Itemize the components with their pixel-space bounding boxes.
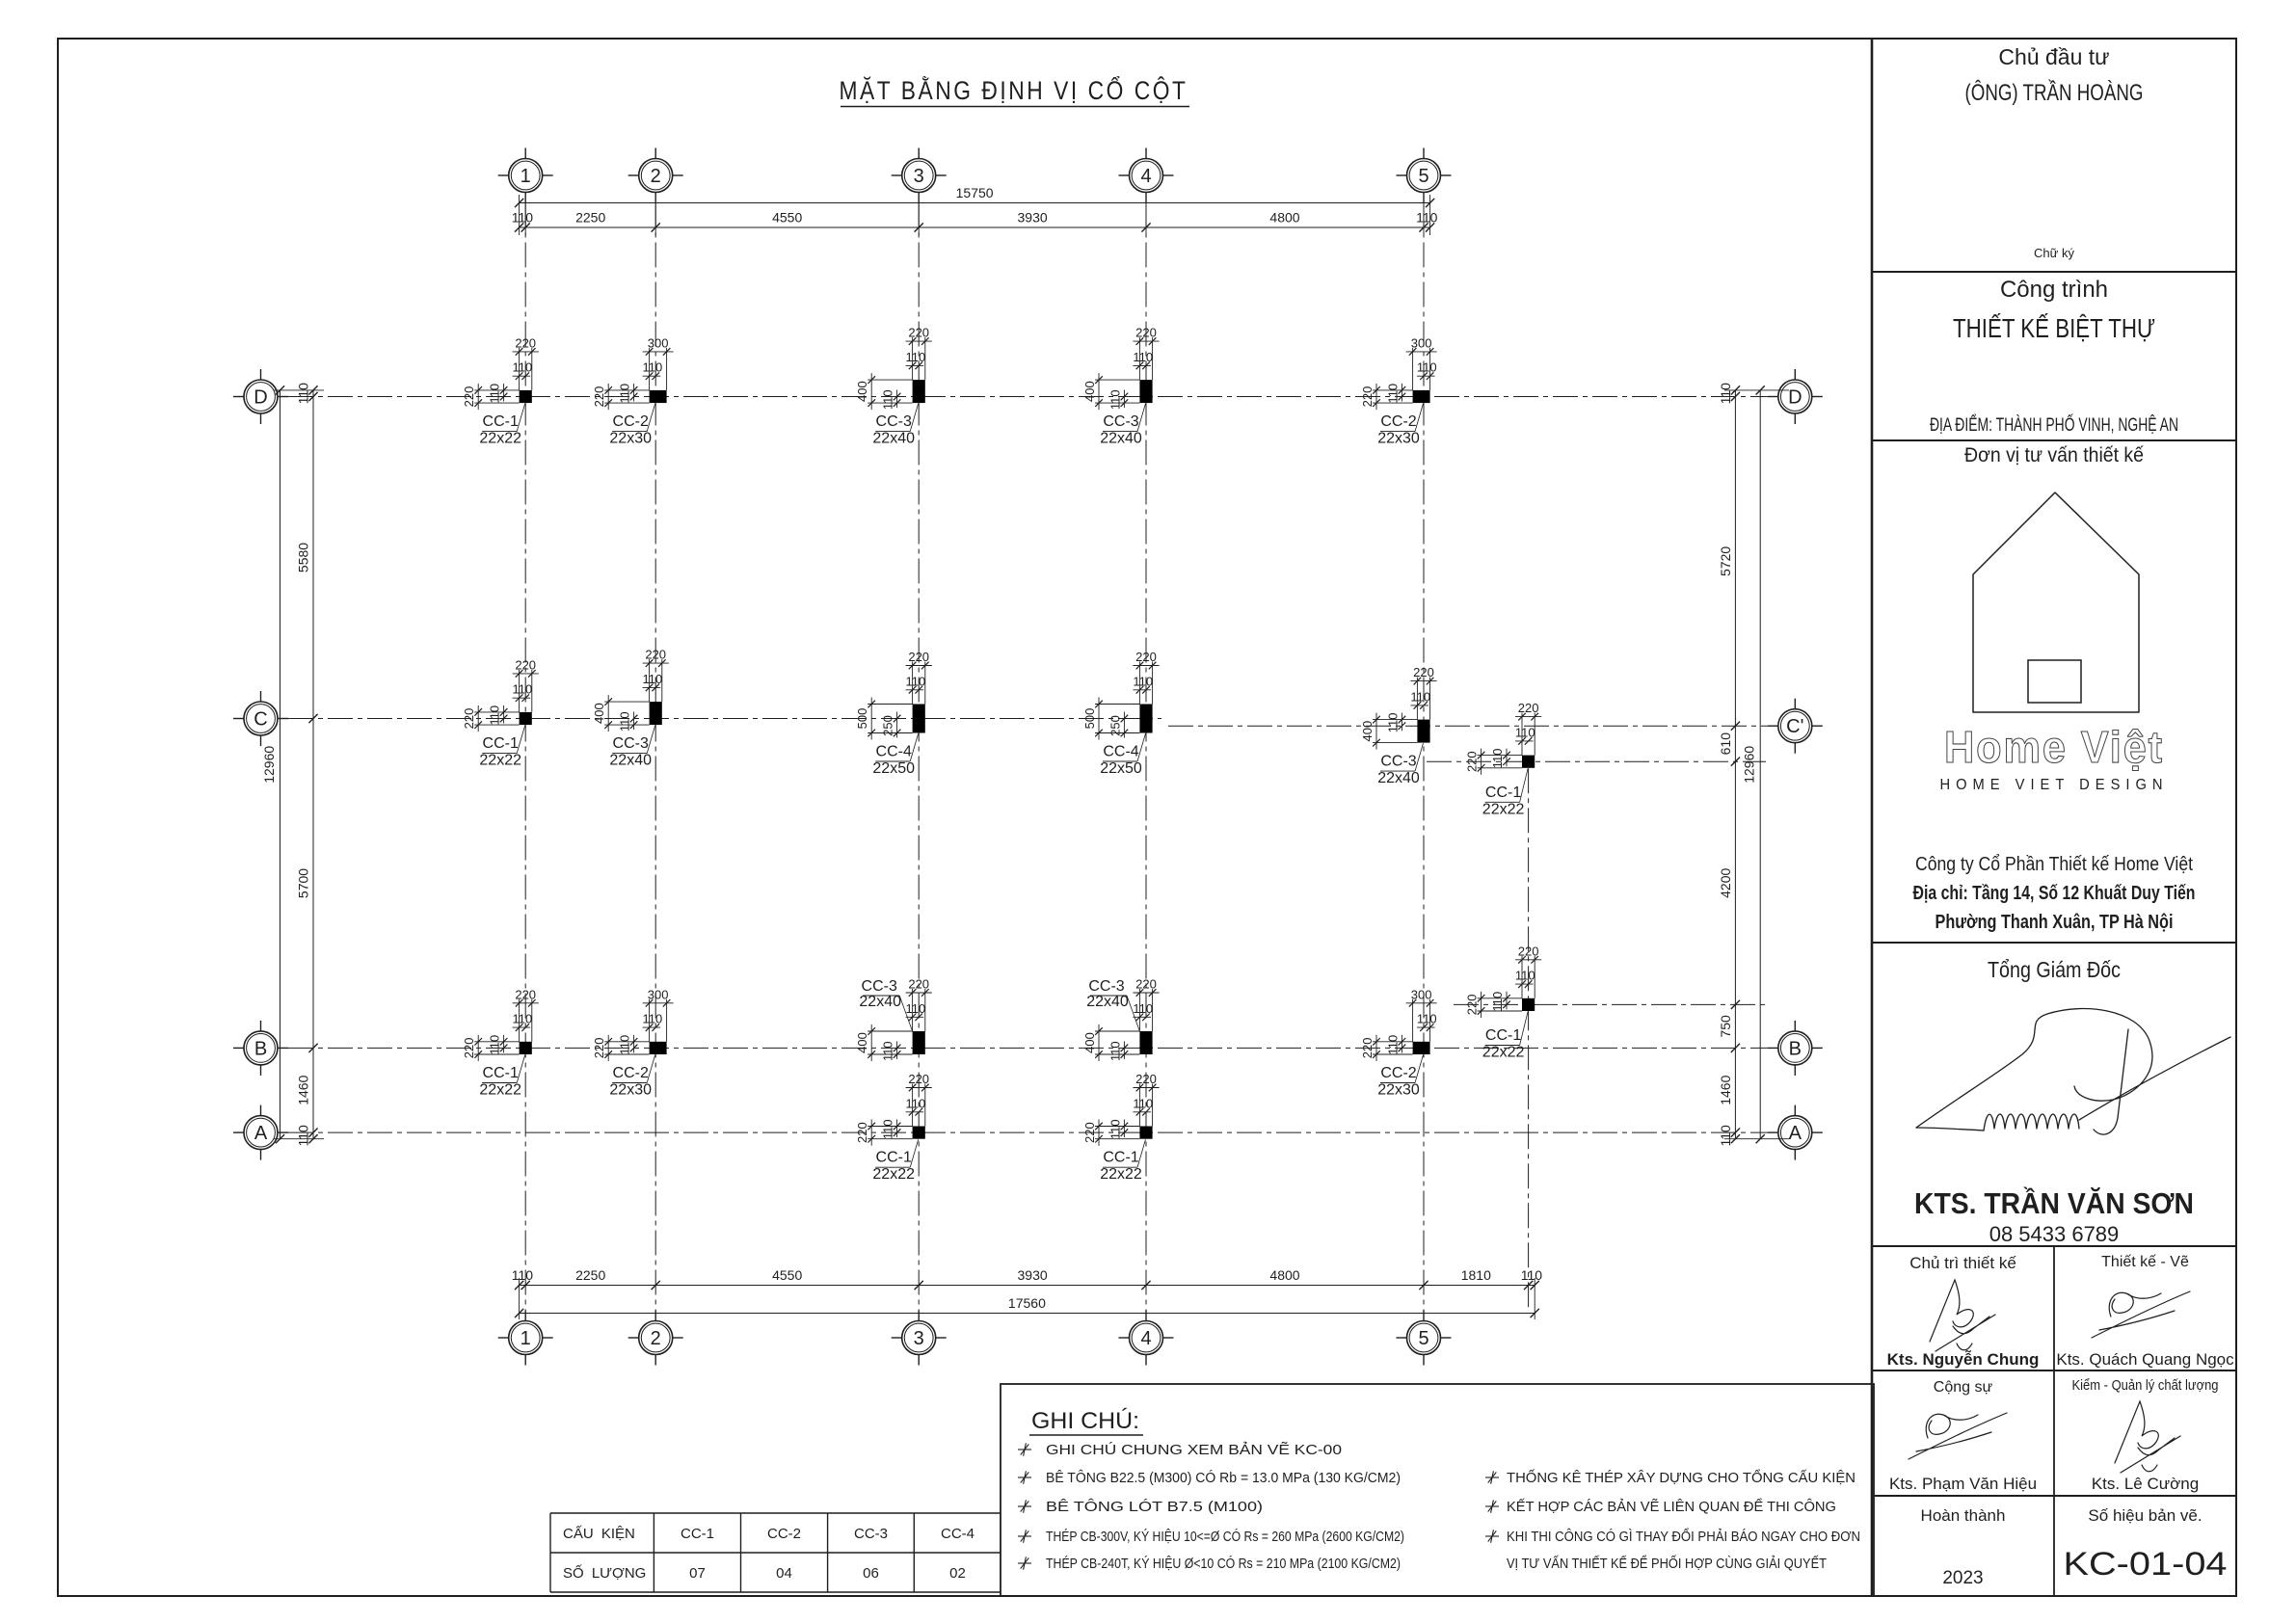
svg-text:220: 220	[1135, 1072, 1157, 1086]
svg-text:Chủ đầu tư: Chủ đầu tư	[1998, 44, 2109, 69]
svg-text:17560: 17560	[1008, 1295, 1046, 1311]
svg-text:C': C'	[1786, 716, 1803, 737]
svg-text:3: 3	[914, 1328, 924, 1349]
svg-text:22x40: 22x40	[859, 994, 901, 1010]
svg-text:CC-3: CC-3	[613, 735, 649, 752]
svg-text:4200: 4200	[1718, 868, 1733, 898]
svg-text:CC-1: CC-1	[483, 735, 519, 752]
svg-text:300: 300	[1411, 335, 1432, 350]
svg-text:Kts. Quách Quang Ngọc: Kts. Quách Quang Ngọc	[2056, 1350, 2234, 1369]
svg-text:22x22: 22x22	[1482, 1045, 1525, 1061]
svg-text:400: 400	[855, 1032, 869, 1053]
svg-text:110: 110	[1385, 713, 1400, 733]
svg-text:VỊ TƯ VẤN THIẾT KẾ ĐỂ PHỐI HỢP: VỊ TƯ VẤN THIẾT KẾ ĐỂ PHỐI HỢP CÙNG GIẢI…	[1507, 1555, 1827, 1572]
svg-text:BÊ TÔNG B22.5 (M300) CÓ Rb = 1: BÊ TÔNG B22.5 (M300) CÓ Rb = 13.0 MPa (1…	[1046, 1470, 1401, 1486]
svg-text:CC-1: CC-1	[483, 1065, 519, 1081]
svg-text:220: 220	[515, 335, 536, 350]
svg-text:MẶT BẰNG ĐỊNH VỊ CỔ CỘT: MẶT BẰNG ĐỊNH VỊ CỔ CỘT	[840, 75, 1188, 105]
svg-text:22x22: 22x22	[479, 1082, 521, 1099]
svg-text:110: 110	[906, 674, 926, 688]
svg-text:THIẾT KẾ BIỆT THỰ: THIẾT KẾ BIỆT THỰ	[1953, 313, 2155, 343]
svg-text:SỐ LƯỢNG: SỐ LƯỢNG	[563, 1564, 646, 1582]
svg-text:22x30: 22x30	[1377, 1082, 1420, 1099]
svg-text:KHI THI CÔNG CÓ GÌ THAY ĐỔI PH: KHI THI CÔNG CÓ GÌ THAY ĐỔI PHẢI BÁO NGA…	[1507, 1528, 1860, 1545]
svg-text:22x40: 22x40	[872, 431, 915, 447]
svg-text:22x22: 22x22	[1100, 1166, 1142, 1183]
svg-text:KẾT HỢP CÁC BẢN VẼ LIÊN QUAN Đ: KẾT HỢP CÁC BẢN VẼ LIÊN QUAN ĐỂ THI CÔNG	[1507, 1498, 1836, 1515]
svg-text:110: 110	[1108, 1119, 1122, 1139]
svg-text:110: 110	[296, 1125, 311, 1147]
svg-text:Cộng sự: Cộng sự	[1934, 1379, 1993, 1396]
svg-text:4550: 4550	[772, 210, 802, 226]
svg-text:CC-1: CC-1	[1485, 1027, 1521, 1044]
svg-text:Số hiệu bản vẽ.: Số hiệu bản vẽ.	[2088, 1506, 2202, 1525]
svg-text:220: 220	[1465, 995, 1480, 1016]
svg-text:610: 610	[1718, 732, 1733, 756]
svg-text:Thiết kế - Vẽ: Thiết kế - Vẽ	[2101, 1254, 2189, 1270]
svg-text:110: 110	[618, 1035, 632, 1055]
svg-text:D: D	[254, 387, 267, 409]
svg-text:22x22: 22x22	[479, 753, 521, 769]
svg-text:3930: 3930	[1018, 210, 1048, 226]
svg-text:110: 110	[1417, 360, 1437, 375]
svg-text:22x30: 22x30	[609, 1082, 652, 1099]
svg-text:110: 110	[1410, 689, 1430, 704]
svg-text:220: 220	[1360, 386, 1375, 408]
svg-text:CC-1: CC-1	[483, 413, 519, 430]
svg-text:22x50: 22x50	[1100, 760, 1142, 777]
svg-text:CC-4: CC-4	[876, 744, 912, 760]
svg-text:22x40: 22x40	[1100, 431, 1142, 447]
svg-text:110: 110	[881, 1041, 895, 1061]
svg-text:500: 500	[1082, 708, 1097, 730]
svg-text:110: 110	[881, 1119, 895, 1139]
svg-text:07: 07	[689, 1565, 706, 1582]
svg-text:Công trình: Công trình	[2000, 277, 2108, 303]
svg-text:22x30: 22x30	[1377, 431, 1420, 447]
svg-text:1460: 1460	[1718, 1075, 1733, 1104]
svg-text:110: 110	[881, 389, 895, 410]
svg-text:110: 110	[1133, 674, 1153, 688]
svg-text:250: 250	[881, 715, 895, 736]
svg-text:22x40: 22x40	[1377, 770, 1420, 786]
svg-text:5: 5	[1418, 1328, 1428, 1349]
svg-text:110: 110	[906, 1096, 926, 1110]
svg-text:CC-2: CC-2	[613, 1065, 649, 1081]
svg-text:220: 220	[855, 1122, 869, 1143]
svg-text:A: A	[1789, 1123, 1802, 1144]
svg-text:3: 3	[914, 166, 924, 187]
svg-text:4: 4	[1140, 1328, 1151, 1349]
svg-text:110: 110	[512, 210, 534, 226]
svg-text:110: 110	[1385, 384, 1400, 404]
svg-text:CC-1: CC-1	[1485, 785, 1521, 801]
svg-text:220: 220	[908, 1072, 929, 1086]
svg-text:Kts. Nguyễn Chung: Kts. Nguyễn Chung	[1887, 1350, 2040, 1369]
svg-text:220: 220	[462, 386, 476, 408]
svg-text:220: 220	[1360, 1038, 1375, 1059]
svg-text:ĐỊA ĐIỂM: THÀNH PHỐ VINH, NGHỆ: ĐỊA ĐIỂM: THÀNH PHỐ VINH, NGHỆ AN	[1930, 414, 2178, 436]
svg-text:400: 400	[1360, 721, 1375, 742]
svg-text:110: 110	[906, 350, 926, 364]
svg-text:110: 110	[1385, 1035, 1400, 1055]
svg-text:4: 4	[1140, 166, 1151, 187]
svg-text:22x30: 22x30	[609, 431, 652, 447]
svg-text:110: 110	[1521, 1267, 1543, 1283]
svg-text:220: 220	[592, 386, 606, 408]
svg-text:15750: 15750	[956, 185, 994, 200]
svg-text:CC-3: CC-3	[876, 413, 912, 430]
svg-text:Chữ ký: Chữ ký	[2034, 246, 2074, 260]
svg-text:750: 750	[1718, 1015, 1733, 1038]
svg-text:110: 110	[1133, 1096, 1153, 1110]
svg-text:220: 220	[1518, 701, 1539, 715]
svg-text:CC-2: CC-2	[1380, 1065, 1416, 1081]
svg-text:400: 400	[855, 381, 869, 402]
svg-text:CẤU KIỆN: CẤU KIỆN	[563, 1526, 635, 1542]
svg-text:220: 220	[1518, 944, 1539, 958]
svg-text:5: 5	[1418, 166, 1428, 187]
svg-text:220: 220	[515, 657, 536, 672]
svg-text:KC-01-04: KC-01-04	[2064, 1546, 2228, 1583]
svg-text:2: 2	[651, 166, 661, 187]
svg-text:220: 220	[908, 977, 929, 992]
svg-text:110: 110	[488, 384, 502, 404]
svg-text:CC-4: CC-4	[1103, 744, 1138, 760]
svg-text:2250: 2250	[575, 1267, 605, 1283]
svg-text:110: 110	[1133, 1001, 1153, 1016]
svg-text:THÉP CB-240T, KÝ HIỆU Ø<10 CÓ: THÉP CB-240T, KÝ HIỆU Ø<10 CÓ Rs = 210 M…	[1046, 1556, 1401, 1572]
svg-text:110: 110	[1515, 969, 1535, 983]
svg-text:22x40: 22x40	[609, 753, 652, 769]
svg-text:220: 220	[1413, 665, 1434, 679]
svg-text:1460: 1460	[296, 1075, 311, 1104]
svg-text:D: D	[1788, 387, 1802, 409]
svg-text:CC-2: CC-2	[1380, 413, 1416, 430]
svg-text:5700: 5700	[296, 868, 311, 898]
svg-text:110: 110	[1416, 210, 1438, 226]
svg-text:CC-1: CC-1	[876, 1150, 912, 1166]
svg-text:4550: 4550	[772, 1267, 802, 1283]
svg-text:4800: 4800	[1269, 1267, 1299, 1283]
svg-text:110: 110	[512, 1267, 534, 1283]
svg-text:300: 300	[648, 987, 669, 1001]
svg-text:220: 220	[462, 708, 476, 730]
svg-text:220: 220	[908, 650, 929, 664]
svg-text:110: 110	[643, 672, 663, 686]
svg-text:500: 500	[855, 708, 869, 730]
svg-text:1: 1	[521, 1328, 531, 1349]
svg-text:2250: 2250	[575, 210, 605, 226]
svg-text:5580: 5580	[296, 543, 311, 572]
svg-text:110: 110	[643, 360, 663, 375]
svg-text:400: 400	[592, 703, 606, 724]
svg-text:22x22: 22x22	[872, 1166, 915, 1183]
svg-text:CC-3: CC-3	[1103, 413, 1138, 430]
svg-text:110: 110	[488, 705, 502, 726]
svg-text:CC-1: CC-1	[681, 1526, 714, 1542]
svg-text:C: C	[254, 709, 267, 731]
svg-text:A: A	[254, 1123, 268, 1144]
svg-text:220: 220	[908, 326, 929, 340]
svg-text:CC-3: CC-3	[862, 978, 897, 995]
svg-text:110: 110	[618, 384, 632, 404]
svg-text:22x22: 22x22	[1482, 801, 1525, 817]
svg-text:2023: 2023	[1942, 1568, 1983, 1588]
svg-text:110: 110	[1133, 350, 1153, 364]
svg-text:110: 110	[1718, 383, 1733, 405]
svg-text:2: 2	[651, 1328, 661, 1349]
svg-text:110: 110	[1417, 1012, 1437, 1026]
svg-text:GHI CHÚ:: GHI CHÚ:	[1031, 1408, 1139, 1434]
svg-text:400: 400	[1082, 1032, 1097, 1053]
svg-text:Chủ trì thiết kế: Chủ trì thiết kế	[1909, 1254, 2016, 1272]
svg-text:CC-4: CC-4	[941, 1526, 974, 1542]
svg-text:250: 250	[1108, 715, 1122, 736]
svg-text:Hoàn thành: Hoàn thành	[1921, 1506, 2006, 1525]
svg-text:220: 220	[1135, 650, 1157, 664]
svg-text:KTS. TRẦN VĂN SƠN: KTS. TRẦN VĂN SƠN	[1914, 1186, 2194, 1220]
svg-text:Đơn vị tư vấn thiết kế: Đơn vị tư vấn thiết kế	[1964, 444, 2144, 466]
svg-text:GHI CHÚ CHUNG XEM BẢN VẼ KC-00: GHI CHÚ CHUNG XEM BẢN VẼ KC-00	[1046, 1442, 1342, 1458]
svg-text:300: 300	[1411, 987, 1432, 1001]
svg-text:220: 220	[515, 987, 536, 1001]
svg-text:08 5433 6789: 08 5433 6789	[1989, 1222, 2120, 1246]
svg-text:110: 110	[618, 711, 632, 732]
svg-text:12960: 12960	[1742, 746, 1757, 784]
svg-text:1810: 1810	[1461, 1267, 1491, 1283]
svg-text:220: 220	[1135, 326, 1157, 340]
svg-text:1: 1	[521, 166, 531, 187]
svg-text:THÉP CB-300V, KÝ HIỆU 10<=Ø CÓ: THÉP CB-300V, KÝ HIỆU 10<=Ø CÓ Rs = 260 …	[1046, 1529, 1404, 1545]
svg-text:BÊ TÔNG LÓT B7.5 (M100): BÊ TÔNG LÓT B7.5 (M100)	[1046, 1499, 1263, 1515]
svg-text:12960: 12960	[261, 746, 277, 784]
svg-text:220: 220	[462, 1038, 476, 1059]
svg-text:22x40: 22x40	[1086, 994, 1129, 1010]
svg-text:CC-3: CC-3	[854, 1526, 888, 1542]
svg-text:06: 06	[863, 1565, 879, 1582]
svg-text:220: 220	[645, 648, 666, 662]
svg-text:110: 110	[1108, 1041, 1122, 1061]
svg-text:04: 04	[776, 1565, 792, 1582]
svg-text:Kts. Lê Cường: Kts. Lê Cường	[2092, 1475, 2199, 1493]
svg-text:110: 110	[1718, 1125, 1733, 1147]
svg-text:CC-2: CC-2	[613, 413, 649, 430]
svg-text:110: 110	[1515, 725, 1535, 739]
svg-text:Home Việt: Home Việt	[1944, 722, 2164, 772]
svg-text:Công ty Cổ Phần Thiết kế Home: Công ty Cổ Phần Thiết kế Home Việt	[1915, 854, 2193, 875]
svg-text:CC-3: CC-3	[1380, 754, 1416, 770]
svg-text:Tổng Giám Đốc: Tổng Giám Đốc	[1988, 957, 2121, 982]
svg-text:Kiểm - Quản lý chất lượng: Kiểm - Quản lý chất lượng	[2072, 1377, 2219, 1394]
svg-text:(ÔNG) TRẦN HOÀNG: (ÔNG) TRẦN HOÀNG	[1965, 79, 2144, 106]
svg-text:110: 110	[1490, 992, 1505, 1012]
svg-text:110: 110	[513, 1012, 533, 1026]
svg-text:110: 110	[1490, 749, 1505, 769]
svg-text:110: 110	[513, 360, 533, 375]
svg-text:220: 220	[1135, 977, 1157, 992]
svg-text:110: 110	[643, 1012, 663, 1026]
svg-text:4800: 4800	[1269, 210, 1299, 226]
svg-text:220: 220	[1082, 1122, 1097, 1143]
svg-text:22x22: 22x22	[479, 431, 521, 447]
svg-text:CC-1: CC-1	[1103, 1150, 1138, 1166]
svg-text:400: 400	[1082, 381, 1097, 402]
svg-text:CC-3: CC-3	[1088, 978, 1124, 995]
svg-text:22x50: 22x50	[872, 760, 915, 777]
svg-text:110: 110	[1108, 389, 1122, 410]
svg-text:THỐNG KÊ THÉP XÂY DỰNG CHO TỔN: THỐNG KÊ THÉP XÂY DỰNG CHO TỔNG CẤU KIỆN	[1507, 1469, 1855, 1486]
svg-text:300: 300	[648, 335, 669, 350]
svg-text:HOME VIET DESIGN: HOME VIET DESIGN	[1940, 777, 2169, 793]
svg-text:5720: 5720	[1718, 546, 1733, 576]
svg-text:Địa chỉ: Tầng 14, Số 12 Khuất: Địa chỉ: Tầng 14, Số 12 Khuất Duy Tiến	[1913, 883, 2196, 904]
svg-text:220: 220	[592, 1038, 606, 1059]
svg-text:220: 220	[1465, 751, 1480, 772]
svg-text:Phường Thanh Xuân, TP Hà Nội: Phường Thanh Xuân, TP Hà Nội	[1936, 912, 2174, 933]
svg-text:110: 110	[296, 383, 311, 405]
svg-text:110: 110	[906, 1001, 926, 1016]
svg-text:CC-2: CC-2	[767, 1526, 801, 1542]
svg-text:B: B	[254, 1038, 267, 1059]
svg-text:3930: 3930	[1018, 1267, 1048, 1283]
svg-text:02: 02	[949, 1565, 966, 1582]
svg-text:B: B	[1789, 1038, 1802, 1059]
svg-text:110: 110	[513, 682, 533, 697]
svg-text:Kts. Phạm Văn Hiệu: Kts. Phạm Văn Hiệu	[1889, 1475, 2037, 1493]
svg-text:110: 110	[488, 1035, 502, 1055]
